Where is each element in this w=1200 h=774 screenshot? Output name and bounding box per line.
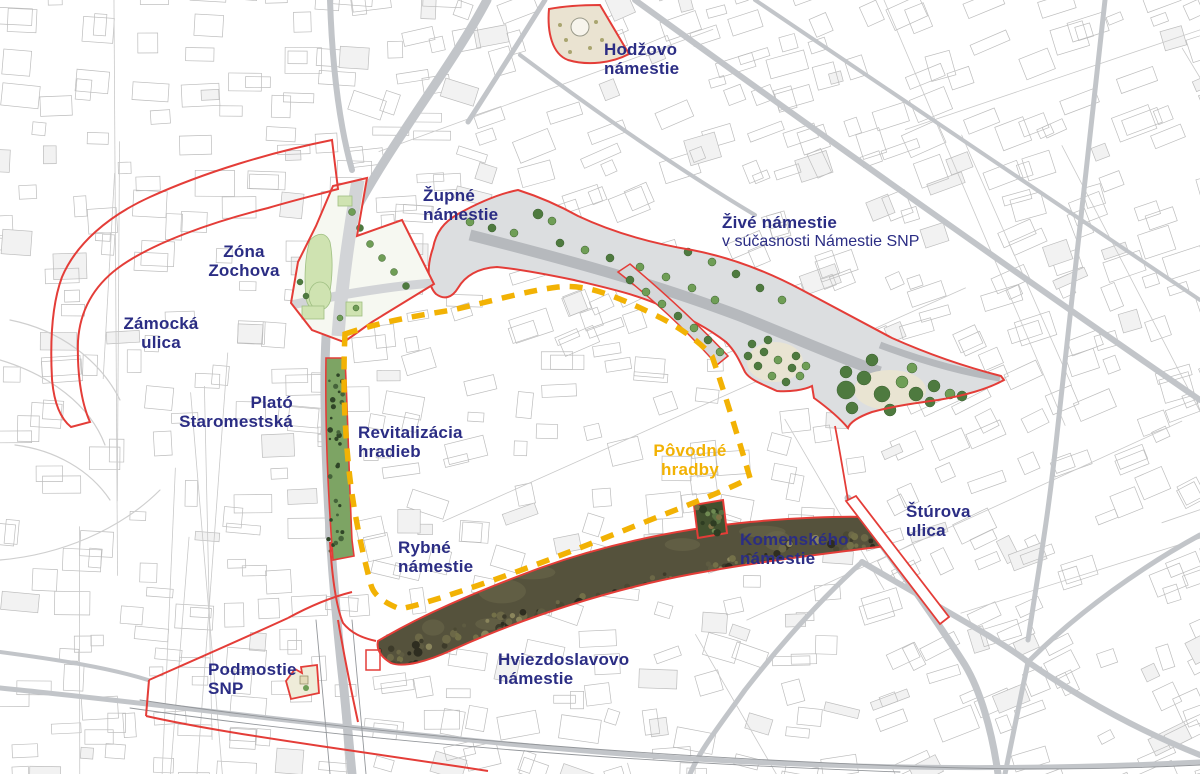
building-footprint — [463, 741, 501, 771]
building-footprint — [594, 654, 620, 675]
building-footprint — [608, 186, 650, 222]
tree-icon — [792, 352, 800, 360]
building-footprint — [1160, 26, 1187, 51]
building-footprint — [975, 409, 999, 434]
vegetation-dot — [338, 391, 341, 394]
building-footprint — [444, 435, 487, 464]
building-footprint — [258, 598, 280, 619]
building-footprint — [677, 0, 693, 12]
building-footprint — [194, 14, 224, 37]
building-footprint — [655, 100, 694, 130]
building-footprint — [224, 603, 244, 627]
tree-icon — [782, 378, 790, 386]
building-footprint — [80, 747, 93, 759]
photo-dot — [556, 600, 560, 604]
podmostie-structure — [300, 676, 308, 684]
building-footprint — [1101, 282, 1124, 311]
building-footprint — [265, 0, 287, 3]
tree-icon — [711, 296, 719, 304]
boundary-rybne-block — [366, 650, 380, 670]
building-footprint — [1183, 0, 1200, 20]
vegetation-dot — [338, 504, 341, 507]
building-footprint — [1151, 124, 1186, 149]
building-footprint — [780, 408, 811, 433]
building-footprint — [786, 727, 810, 738]
building-footprint — [861, 588, 902, 619]
building-footprint — [1, 591, 40, 613]
road-diagonal-3 — [520, 55, 755, 215]
building-footprint — [902, 642, 925, 670]
building-footprint — [363, 532, 392, 561]
building-footprint — [150, 110, 170, 125]
building-footprint — [89, 447, 120, 470]
tree-icon — [510, 229, 518, 237]
photo-dot — [730, 579, 737, 586]
tree-icon — [626, 276, 634, 284]
photo-dot — [714, 578, 723, 587]
building-footprint — [604, 708, 620, 725]
building-footprint — [514, 441, 527, 456]
hodzovo-fountain — [571, 18, 589, 36]
building-footprint — [29, 766, 60, 774]
vegetation-dot — [340, 392, 345, 397]
building-footprint — [662, 456, 691, 481]
tree-icon — [866, 354, 878, 366]
building-footprint — [19, 185, 37, 199]
photo-blotch — [422, 619, 444, 635]
building-footprint — [901, 206, 920, 223]
building-footprint — [429, 36, 445, 53]
building-footprint — [966, 420, 1006, 449]
vegetation-dot — [338, 536, 344, 542]
building-footprint — [579, 630, 617, 648]
tree-icon — [756, 284, 764, 292]
building-footprint — [584, 683, 611, 707]
photo-dot — [699, 505, 707, 513]
tree-icon — [594, 20, 598, 24]
photo-blotch — [680, 650, 714, 668]
building-footprint — [476, 128, 497, 145]
building-footprint — [1145, 207, 1177, 230]
building-footprint — [927, 172, 965, 195]
building-footprint — [731, 0, 749, 4]
photo-dot — [851, 533, 858, 540]
building-footprint — [1073, 389, 1116, 422]
photo-dot — [701, 521, 705, 525]
photo-dot — [723, 577, 726, 580]
building-footprint — [824, 702, 860, 719]
building-footprint — [101, 234, 114, 255]
building-footprint — [1010, 192, 1046, 222]
building-footprint — [584, 423, 602, 440]
building-footprint — [518, 750, 536, 773]
building-footprint — [790, 0, 822, 6]
building-footprint — [605, 357, 632, 372]
photo-dot — [629, 606, 635, 612]
building-footprint — [925, 50, 956, 81]
building-footprint — [1103, 355, 1120, 374]
building-footprint — [339, 46, 369, 69]
building-footprint — [278, 406, 319, 428]
building-footprint — [388, 41, 403, 58]
building-footprint — [726, 231, 765, 260]
tree-icon — [760, 348, 768, 356]
building-footprint — [905, 63, 945, 89]
building-footprint — [588, 120, 627, 145]
tree-icon — [708, 258, 716, 266]
building-footprint — [1091, 143, 1110, 161]
building-footprint — [475, 162, 497, 183]
photo-dot — [714, 529, 721, 536]
building-footprint — [909, 755, 944, 774]
building-footprint — [1183, 702, 1200, 727]
building-footprint — [885, 272, 904, 290]
photo-dot — [442, 635, 451, 644]
building-footprint — [742, 160, 763, 183]
tree-icon — [353, 305, 359, 311]
building-footprint — [1151, 12, 1169, 26]
building-footprint — [64, 290, 79, 302]
building-footprint — [587, 317, 624, 338]
building-footprint — [497, 710, 540, 740]
photo-dot — [663, 581, 668, 586]
building-footprint — [146, 587, 173, 598]
building-footprint — [605, 0, 636, 21]
building-footprint — [140, 0, 168, 5]
building-footprint — [409, 587, 426, 614]
photo-dot — [710, 520, 716, 526]
photo-dot — [453, 628, 456, 631]
building-footprint — [512, 128, 555, 163]
building-footprint — [293, 12, 311, 32]
tree-icon — [840, 366, 852, 378]
building-footprint — [0, 431, 32, 443]
vegetation-dot — [333, 541, 338, 546]
building-footprint — [728, 10, 763, 36]
photo-dot — [599, 601, 606, 608]
building-footprint — [424, 710, 459, 729]
vegetation-dot — [336, 430, 340, 434]
building-footprint — [91, 635, 103, 646]
building-footprint — [228, 559, 246, 568]
map-stage: HodžovonámestieŽupnénámestieŽivé námesti… — [0, 0, 1200, 774]
building-footprint — [1, 229, 32, 256]
building-footprint — [404, 336, 419, 352]
building-footprint — [283, 93, 314, 103]
vegetation-dot — [334, 499, 338, 503]
building-footprint — [396, 69, 429, 84]
building-footprint — [272, 369, 308, 384]
building-footprint — [907, 275, 923, 290]
photo-dot — [749, 566, 753, 570]
building-footprint — [846, 456, 866, 474]
building-footprint — [440, 709, 465, 737]
building-footprint — [351, 0, 367, 16]
building-footprint — [223, 507, 243, 528]
photo-dot — [407, 651, 411, 655]
photo-dot — [646, 602, 653, 609]
building-footprint — [975, 551, 1000, 569]
building-footprint — [1137, 410, 1169, 437]
building-footprint — [118, 162, 131, 174]
building-footprint — [934, 705, 980, 742]
tree-icon — [744, 352, 752, 360]
building-footprint — [4, 519, 19, 544]
building-footprint — [427, 548, 452, 575]
building-footprint — [1004, 360, 1043, 390]
building-footprint — [931, 428, 970, 461]
photo-blotch — [702, 593, 722, 614]
building-footprint — [604, 766, 628, 774]
tree-icon — [802, 362, 810, 370]
building-footprint — [515, 483, 536, 506]
building-footprint — [570, 691, 583, 708]
building-footprint — [195, 373, 220, 388]
road-fan-5 — [690, 562, 862, 774]
tree-icon — [837, 381, 855, 399]
photo-dot — [802, 559, 810, 567]
building-footprint — [271, 95, 290, 118]
tree-icon — [704, 336, 712, 344]
building-footprint — [348, 90, 387, 120]
photo-dot — [522, 631, 530, 639]
building-footprint — [995, 117, 1032, 151]
photo-dot — [799, 560, 808, 569]
photo-dot — [814, 538, 820, 544]
photo-dot — [531, 626, 536, 631]
tree-icon — [896, 376, 908, 388]
building-footprint — [383, 391, 425, 420]
tree-icon — [606, 254, 614, 262]
tree-icon — [303, 293, 309, 299]
building-footprint — [729, 624, 750, 641]
building-footprint — [1009, 228, 1047, 255]
photo-blotch — [695, 595, 742, 612]
tree-icon — [662, 273, 670, 281]
vegetation-dot — [328, 380, 331, 383]
tree-icon — [928, 380, 940, 392]
building-footprint — [1053, 267, 1088, 289]
building-footprint — [872, 102, 909, 130]
building-footprint — [12, 744, 38, 758]
building-footprint — [1122, 107, 1163, 135]
building-footprint — [1097, 649, 1118, 668]
photo-dot — [735, 561, 738, 564]
building-footprint — [653, 391, 678, 415]
building-footprint — [1022, 150, 1056, 181]
building-footprint — [144, 335, 158, 351]
tree-icon — [379, 255, 386, 262]
photo-dot — [520, 609, 527, 616]
tree-icon — [581, 246, 589, 254]
building-footprint — [0, 149, 10, 173]
photo-dot — [742, 577, 749, 584]
tree-icon — [558, 23, 562, 27]
building-footprint — [797, 707, 822, 726]
photo-dot — [719, 510, 724, 515]
building-footprint — [907, 281, 946, 308]
building-footprint — [656, 0, 675, 1]
building-footprint — [524, 639, 564, 662]
building-footprint — [1110, 487, 1143, 518]
building-footprint — [1162, 246, 1200, 280]
building-footprint — [249, 174, 278, 189]
tree-icon — [367, 241, 374, 248]
photo-dot — [765, 573, 769, 577]
building-footprint — [909, 522, 948, 543]
building-footprint — [558, 764, 595, 774]
building-footprint — [105, 744, 125, 759]
building-footprint — [462, 522, 483, 543]
vegetation-dot — [329, 518, 333, 522]
building-footprint — [230, 727, 257, 749]
building-footprint — [132, 82, 169, 102]
vegetation-dot — [330, 417, 333, 420]
street-network-layer — [0, 0, 1200, 774]
road-fan-3 — [1028, 535, 1200, 662]
building-footprint — [809, 13, 833, 38]
photo-dot — [716, 514, 722, 520]
photo-dot — [715, 588, 719, 592]
building-footprint — [1075, 23, 1094, 41]
building-footprint — [541, 352, 572, 370]
photo-dot — [506, 618, 513, 625]
building-footprint — [280, 629, 297, 650]
building-footprint — [63, 664, 84, 691]
building-footprint — [601, 160, 617, 176]
building-footprint — [87, 132, 108, 144]
building-footprint — [622, 309, 646, 334]
tree-icon — [796, 372, 804, 380]
vegetation-dot — [329, 438, 331, 440]
tree-icon — [884, 404, 896, 416]
building-footprint — [0, 7, 32, 25]
building-footprint — [192, 676, 208, 685]
photo-dot — [538, 624, 545, 631]
building-footprint — [771, 463, 796, 484]
building-footprint — [0, 523, 16, 546]
building-footprint — [123, 713, 137, 738]
photo-dot — [786, 541, 792, 547]
building-footprint — [190, 0, 227, 2]
building-footprint — [745, 713, 773, 735]
building-footprint — [288, 51, 307, 64]
building-footprint — [963, 0, 1005, 19]
vegetation-dot — [331, 404, 336, 409]
building-footprint — [245, 77, 270, 88]
tree-icon — [588, 46, 592, 50]
road-fan-4 — [1005, 662, 1028, 774]
building-footprint — [870, 689, 909, 710]
building-footprint — [1166, 551, 1200, 577]
building-footprint — [1196, 172, 1200, 201]
building-footprint — [516, 392, 534, 419]
tree-icon — [466, 218, 474, 226]
building-footprint — [440, 78, 479, 106]
photo-dot — [663, 572, 667, 576]
building-footprint — [1021, 409, 1049, 433]
tree-icon — [909, 387, 923, 401]
building-footprint — [226, 523, 261, 535]
building-footprint — [1099, 171, 1124, 192]
building-footprint — [795, 151, 833, 183]
minor-street — [1162, 326, 1200, 523]
building-footprint — [554, 695, 576, 703]
building-footprint — [935, 462, 955, 482]
photo-dot — [868, 539, 873, 544]
tree-icon — [568, 50, 572, 54]
building-footprint — [398, 510, 421, 533]
building-footprint — [179, 135, 211, 155]
road-diagonal-2 — [755, 0, 1200, 300]
building-footprint — [74, 636, 91, 652]
photo-dot — [721, 575, 726, 580]
building-footprint — [1106, 12, 1123, 25]
building-footprint — [40, 332, 77, 350]
building-footprint — [1153, 106, 1173, 125]
photo-blotch — [665, 538, 700, 551]
building-footprint — [40, 96, 72, 117]
building-footprint — [724, 84, 746, 105]
building-footprint — [1141, 663, 1160, 682]
tree-icon — [732, 270, 740, 278]
building-footprint — [285, 150, 301, 160]
building-footprint — [32, 122, 46, 136]
building-footprint — [85, 730, 113, 744]
building-footprint — [905, 3, 933, 34]
building-footprint — [964, 108, 1000, 134]
building-footprint — [43, 476, 81, 493]
building-footprint — [1149, 563, 1188, 597]
building-footprint — [748, 121, 785, 142]
building-footprint — [547, 102, 583, 124]
photo-dot — [399, 652, 404, 657]
photo-dot — [388, 646, 394, 652]
photo-dot — [747, 555, 753, 561]
photo-dot — [705, 511, 710, 516]
tree-icon — [874, 386, 890, 402]
building-footprint — [237, 324, 263, 344]
building-footprint — [1135, 466, 1171, 499]
building-footprint — [138, 33, 158, 53]
building-footprint — [1058, 566, 1082, 590]
photo-dot — [733, 583, 737, 587]
building-footprint — [247, 171, 285, 190]
building-footprint — [1042, 239, 1072, 267]
building-footprint — [134, 626, 168, 642]
building-footprint — [155, 648, 182, 661]
photo-dot — [827, 540, 835, 548]
tree-icon — [556, 239, 564, 247]
building-footprint — [1145, 316, 1172, 342]
building-footprint — [518, 160, 555, 188]
building-footprint — [1118, 309, 1142, 333]
building-footprint — [229, 73, 262, 91]
building-footprint — [181, 211, 207, 232]
tree-icon — [642, 288, 650, 296]
building-footprint — [1185, 633, 1200, 665]
vegetation-dot — [336, 530, 339, 533]
building-footprint — [1050, 21, 1090, 55]
building-footprint — [53, 253, 87, 280]
building-footprint — [456, 146, 487, 163]
photo-dot — [704, 576, 708, 580]
building-footprint — [624, 182, 654, 211]
building-footprint — [706, 5, 727, 18]
building-footprint — [690, 440, 717, 458]
building-footprint — [770, 224, 789, 238]
photo-dot — [641, 588, 644, 591]
